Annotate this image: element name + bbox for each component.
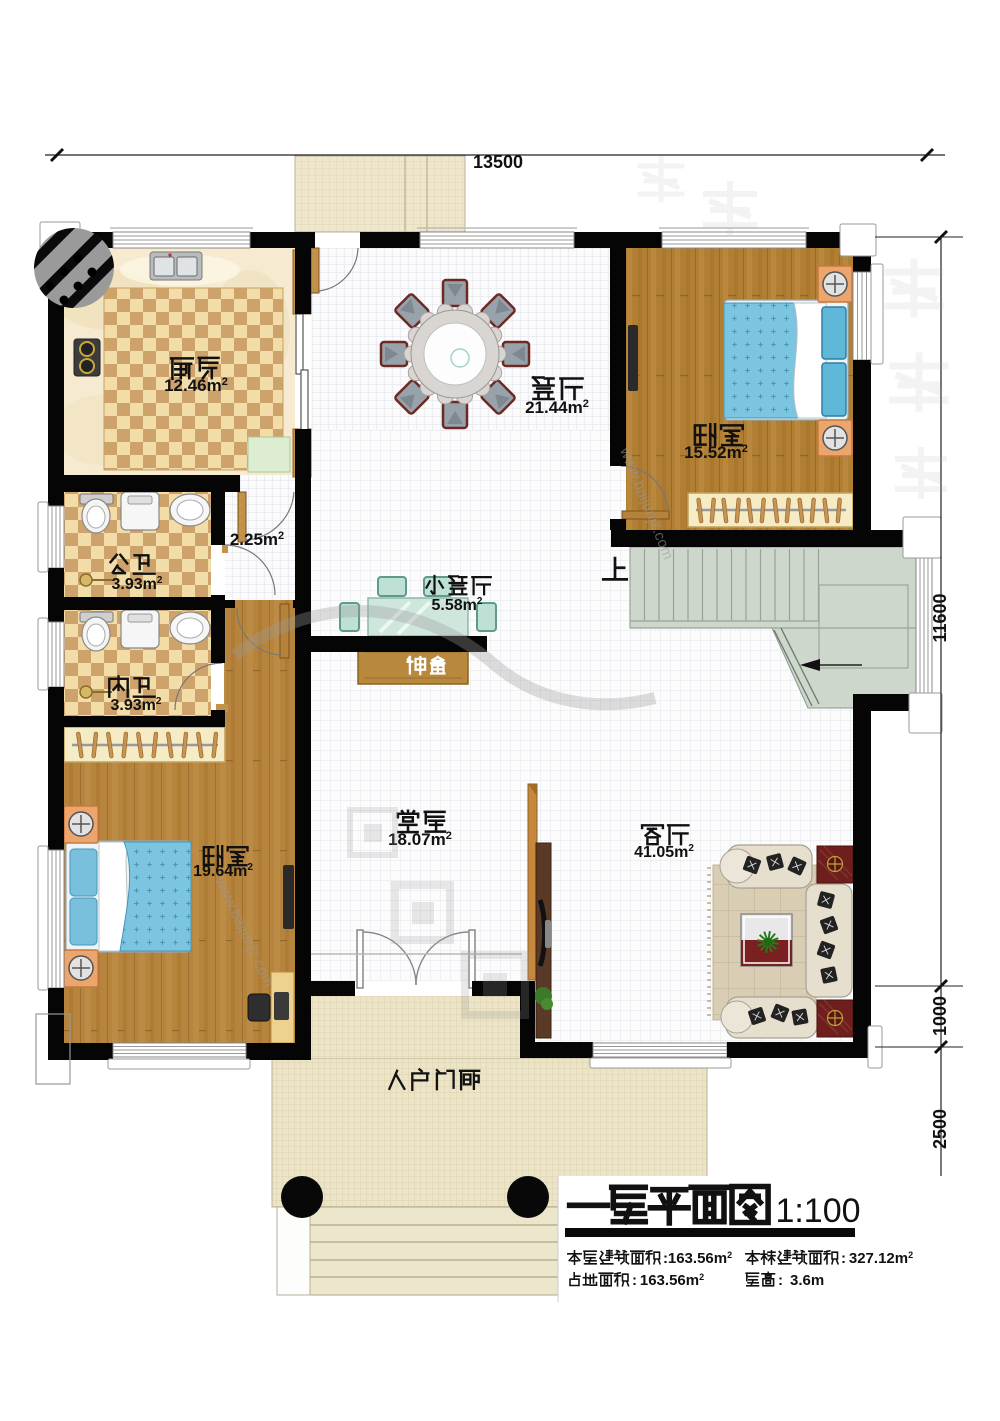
svg-text:163.56m2: 163.56m2 bbox=[668, 1250, 732, 1267]
svg-text:163.56m2: 163.56m2 bbox=[640, 1272, 704, 1289]
svg-text:41.05m2: 41.05m2 bbox=[634, 843, 694, 861]
svg-text:1:100: 1:100 bbox=[775, 1192, 860, 1230]
svg-text:12.46m2: 12.46m2 bbox=[164, 376, 228, 395]
svg-text::: : bbox=[632, 1272, 637, 1289]
svg-text:15.52m2: 15.52m2 bbox=[684, 443, 748, 462]
svg-text:1000: 1000 bbox=[930, 996, 950, 1036]
svg-text:327.12m2: 327.12m2 bbox=[849, 1250, 913, 1267]
svg-text:3.93m2: 3.93m2 bbox=[112, 575, 163, 593]
svg-text:5.58m2: 5.58m2 bbox=[432, 596, 483, 614]
svg-text:13500: 13500 bbox=[473, 152, 523, 172]
svg-text:3.6m: 3.6m bbox=[790, 1272, 824, 1289]
svg-text::: : bbox=[778, 1272, 783, 1289]
svg-text::: : bbox=[841, 1250, 846, 1267]
svg-text:2.25m2: 2.25m2 bbox=[230, 530, 284, 549]
svg-text:3.93m2: 3.93m2 bbox=[111, 696, 162, 714]
svg-text:2500: 2500 bbox=[930, 1109, 950, 1149]
svg-text:21.44m2: 21.44m2 bbox=[525, 398, 589, 417]
svg-text:11600: 11600 bbox=[930, 593, 950, 642]
